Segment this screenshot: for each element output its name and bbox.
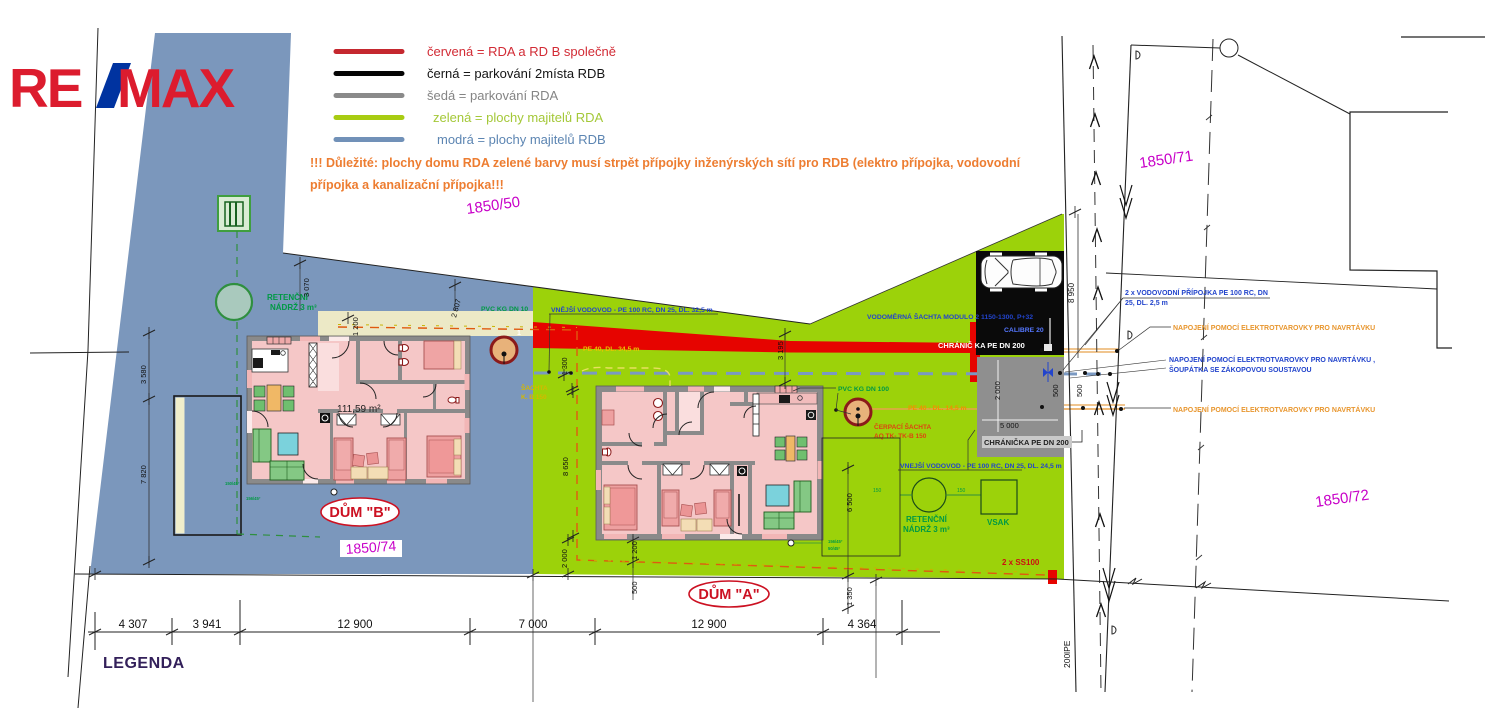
- svg-text:50/45°: 50/45°: [828, 546, 840, 551]
- svg-text:PE 40, DL. 34,5 m: PE 40, DL. 34,5 m: [583, 346, 639, 353]
- svg-text:PVC KG DN 10: PVC KG DN 10: [481, 306, 528, 313]
- svg-text:červená = RDA a RD B společně: červená = RDA a RD B společně: [427, 44, 616, 59]
- svg-text:MAX: MAX: [117, 57, 236, 119]
- svg-text:CALIBRE 20: CALIBRE 20: [1004, 327, 1044, 334]
- svg-text:200lPE: 200lPE: [1062, 640, 1072, 668]
- svg-text:500: 500: [1051, 384, 1060, 397]
- svg-text:DŮM "B": DŮM "B": [329, 502, 390, 521]
- svg-text:156/45°: 156/45°: [828, 539, 843, 544]
- svg-text:4 364: 4 364: [848, 619, 877, 631]
- svg-text:VNĚJŠÍ VODOVOD - PE 100 RC, DN: VNĚJŠÍ VODOVOD - PE 100 RC, DN 25, DL. 3…: [551, 305, 713, 314]
- svg-text:8 650: 8 650: [561, 457, 570, 476]
- svg-text:12 900: 12 900: [337, 619, 372, 631]
- svg-text:NAPOJENÍ POMOCÍ ELEKTROTVAROVK: NAPOJENÍ POMOCÍ ELEKTROTVAROVKY PRO NAVR…: [1173, 405, 1375, 414]
- svg-text:VNEJŠÍ VODOVOD - PE 100 RC, DN: VNEJŠÍ VODOVOD - PE 100 RC, DN 25, DL. 2…: [900, 461, 1062, 470]
- svg-text:2 000: 2 000: [993, 381, 1002, 400]
- svg-text:VODOMĚRNÁ ŠACHTA MODULO 2 1150: VODOMĚRNÁ ŠACHTA MODULO 2 1150-1300, P+3…: [867, 312, 1033, 321]
- svg-text:6 500: 6 500: [845, 493, 854, 512]
- svg-text:modrá = plochy majitelů RDB: modrá = plochy majitelů RDB: [437, 132, 606, 147]
- svg-text:1850/71: 1850/71: [1138, 148, 1194, 172]
- svg-text:3 195: 3 195: [776, 341, 785, 360]
- svg-text:1 350: 1 350: [845, 587, 854, 606]
- svg-text:RE: RE: [9, 57, 82, 119]
- svg-text:!!! Důležité: plochy domu RDA: !!! Důležité: plochy domu RDA zelené bar…: [310, 156, 1021, 170]
- svg-text:150: 150: [957, 488, 966, 494]
- svg-text:ŠOUPÁTKA SE ZÁKOPOVOU SOUSTAVO: ŠOUPÁTKA SE ZÁKOPOVOU SOUSTAVOU: [1169, 365, 1312, 374]
- svg-text:12 900: 12 900: [691, 619, 726, 631]
- svg-text:1 300: 1 300: [562, 357, 569, 375]
- svg-text:111,59 m²: 111,59 m²: [337, 404, 381, 415]
- svg-text:4 307: 4 307: [119, 619, 148, 631]
- svg-text:7 820: 7 820: [139, 465, 148, 484]
- svg-text:500: 500: [630, 581, 639, 594]
- svg-text:CHRÁNIČKA PE DN 200: CHRÁNIČKA PE DN 200: [984, 438, 1069, 447]
- svg-text:1 200: 1 200: [630, 541, 639, 560]
- svg-text:RETENČNÍ: RETENČNÍ: [906, 515, 948, 524]
- svg-text:NÁDRŽ 3 m³: NÁDRŽ 3 m³: [903, 525, 950, 534]
- svg-text:zelená = plochy majitelů RDA: zelená = plochy majitelů RDA: [433, 110, 603, 125]
- svg-text:3 580: 3 580: [139, 365, 148, 384]
- svg-text:přípojka a kanalizační přípojk: přípojka a kanalizační přípojka!!!: [310, 178, 504, 192]
- svg-text:LEGENDA: LEGENDA: [103, 655, 185, 672]
- svg-text:7 000: 7 000: [519, 619, 548, 631]
- svg-text:ŠACHTA: ŠACHTA: [521, 383, 548, 392]
- svg-text:ČERPACÍ ŠACHTA: ČERPACÍ ŠACHTA: [874, 422, 931, 431]
- svg-text:1 200: 1 200: [351, 317, 360, 336]
- svg-text:PVC KG DN 100: PVC KG DN 100: [838, 386, 889, 393]
- svg-text:černá = parkování 2místa RDB: černá = parkování 2místa RDB: [427, 66, 605, 81]
- svg-text:šedá = parkování RDA: šedá = parkování RDA: [427, 88, 558, 103]
- svg-text:150: 150: [873, 488, 882, 494]
- svg-text:5 000: 5 000: [1000, 421, 1019, 430]
- svg-text:2 x SS100: 2 x SS100: [1002, 558, 1040, 567]
- svg-text:1850/50: 1850/50: [465, 194, 521, 218]
- svg-text:1: 1: [517, 330, 521, 337]
- svg-text:NAPOJENÍ POMOCÍ ELEKTROTVAROVK: NAPOJENÍ POMOCÍ ELEKTROTVAROVKY PRO NAVR…: [1173, 323, 1375, 332]
- svg-text:150/45°: 150/45°: [225, 481, 240, 486]
- svg-text:PE 40 - DL. 14,5 m: PE 40 - DL. 14,5 m: [908, 405, 967, 412]
- svg-text:DŮM "A": DŮM "A": [698, 584, 759, 603]
- svg-text:25, DL. 2,5 m: 25, DL. 2,5 m: [1125, 300, 1168, 307]
- svg-text:156/45°: 156/45°: [246, 496, 261, 501]
- svg-text:3 070: 3 070: [302, 278, 311, 297]
- svg-text:K. B 150: K. B 150: [521, 394, 547, 401]
- svg-text:2 000: 2 000: [560, 549, 569, 568]
- svg-text:8 950: 8 950: [1067, 282, 1076, 303]
- svg-text:500: 500: [1075, 384, 1084, 397]
- svg-text:CHRÁNIČ KA PE DN 200: CHRÁNIČ KA PE DN 200: [938, 341, 1025, 350]
- svg-text:NÁDRŽ 3 m³: NÁDRŽ 3 m³: [270, 303, 317, 312]
- svg-text:3 941: 3 941: [193, 619, 222, 631]
- svg-text:NAPOJENÍ POMOCÍ ELEKTROTVAROVK: NAPOJENÍ POMOCÍ ELEKTROTVAROVKY PRO NAVR…: [1169, 355, 1375, 364]
- svg-text:VSAK: VSAK: [987, 518, 1009, 527]
- svg-text:1850/72: 1850/72: [1314, 487, 1370, 511]
- svg-text:2 x VODOVODNÍ PŘÍPOJKA PE 100: 2 x VODOVODNÍ PŘÍPOJKA PE 100 RC, DN: [1125, 288, 1268, 297]
